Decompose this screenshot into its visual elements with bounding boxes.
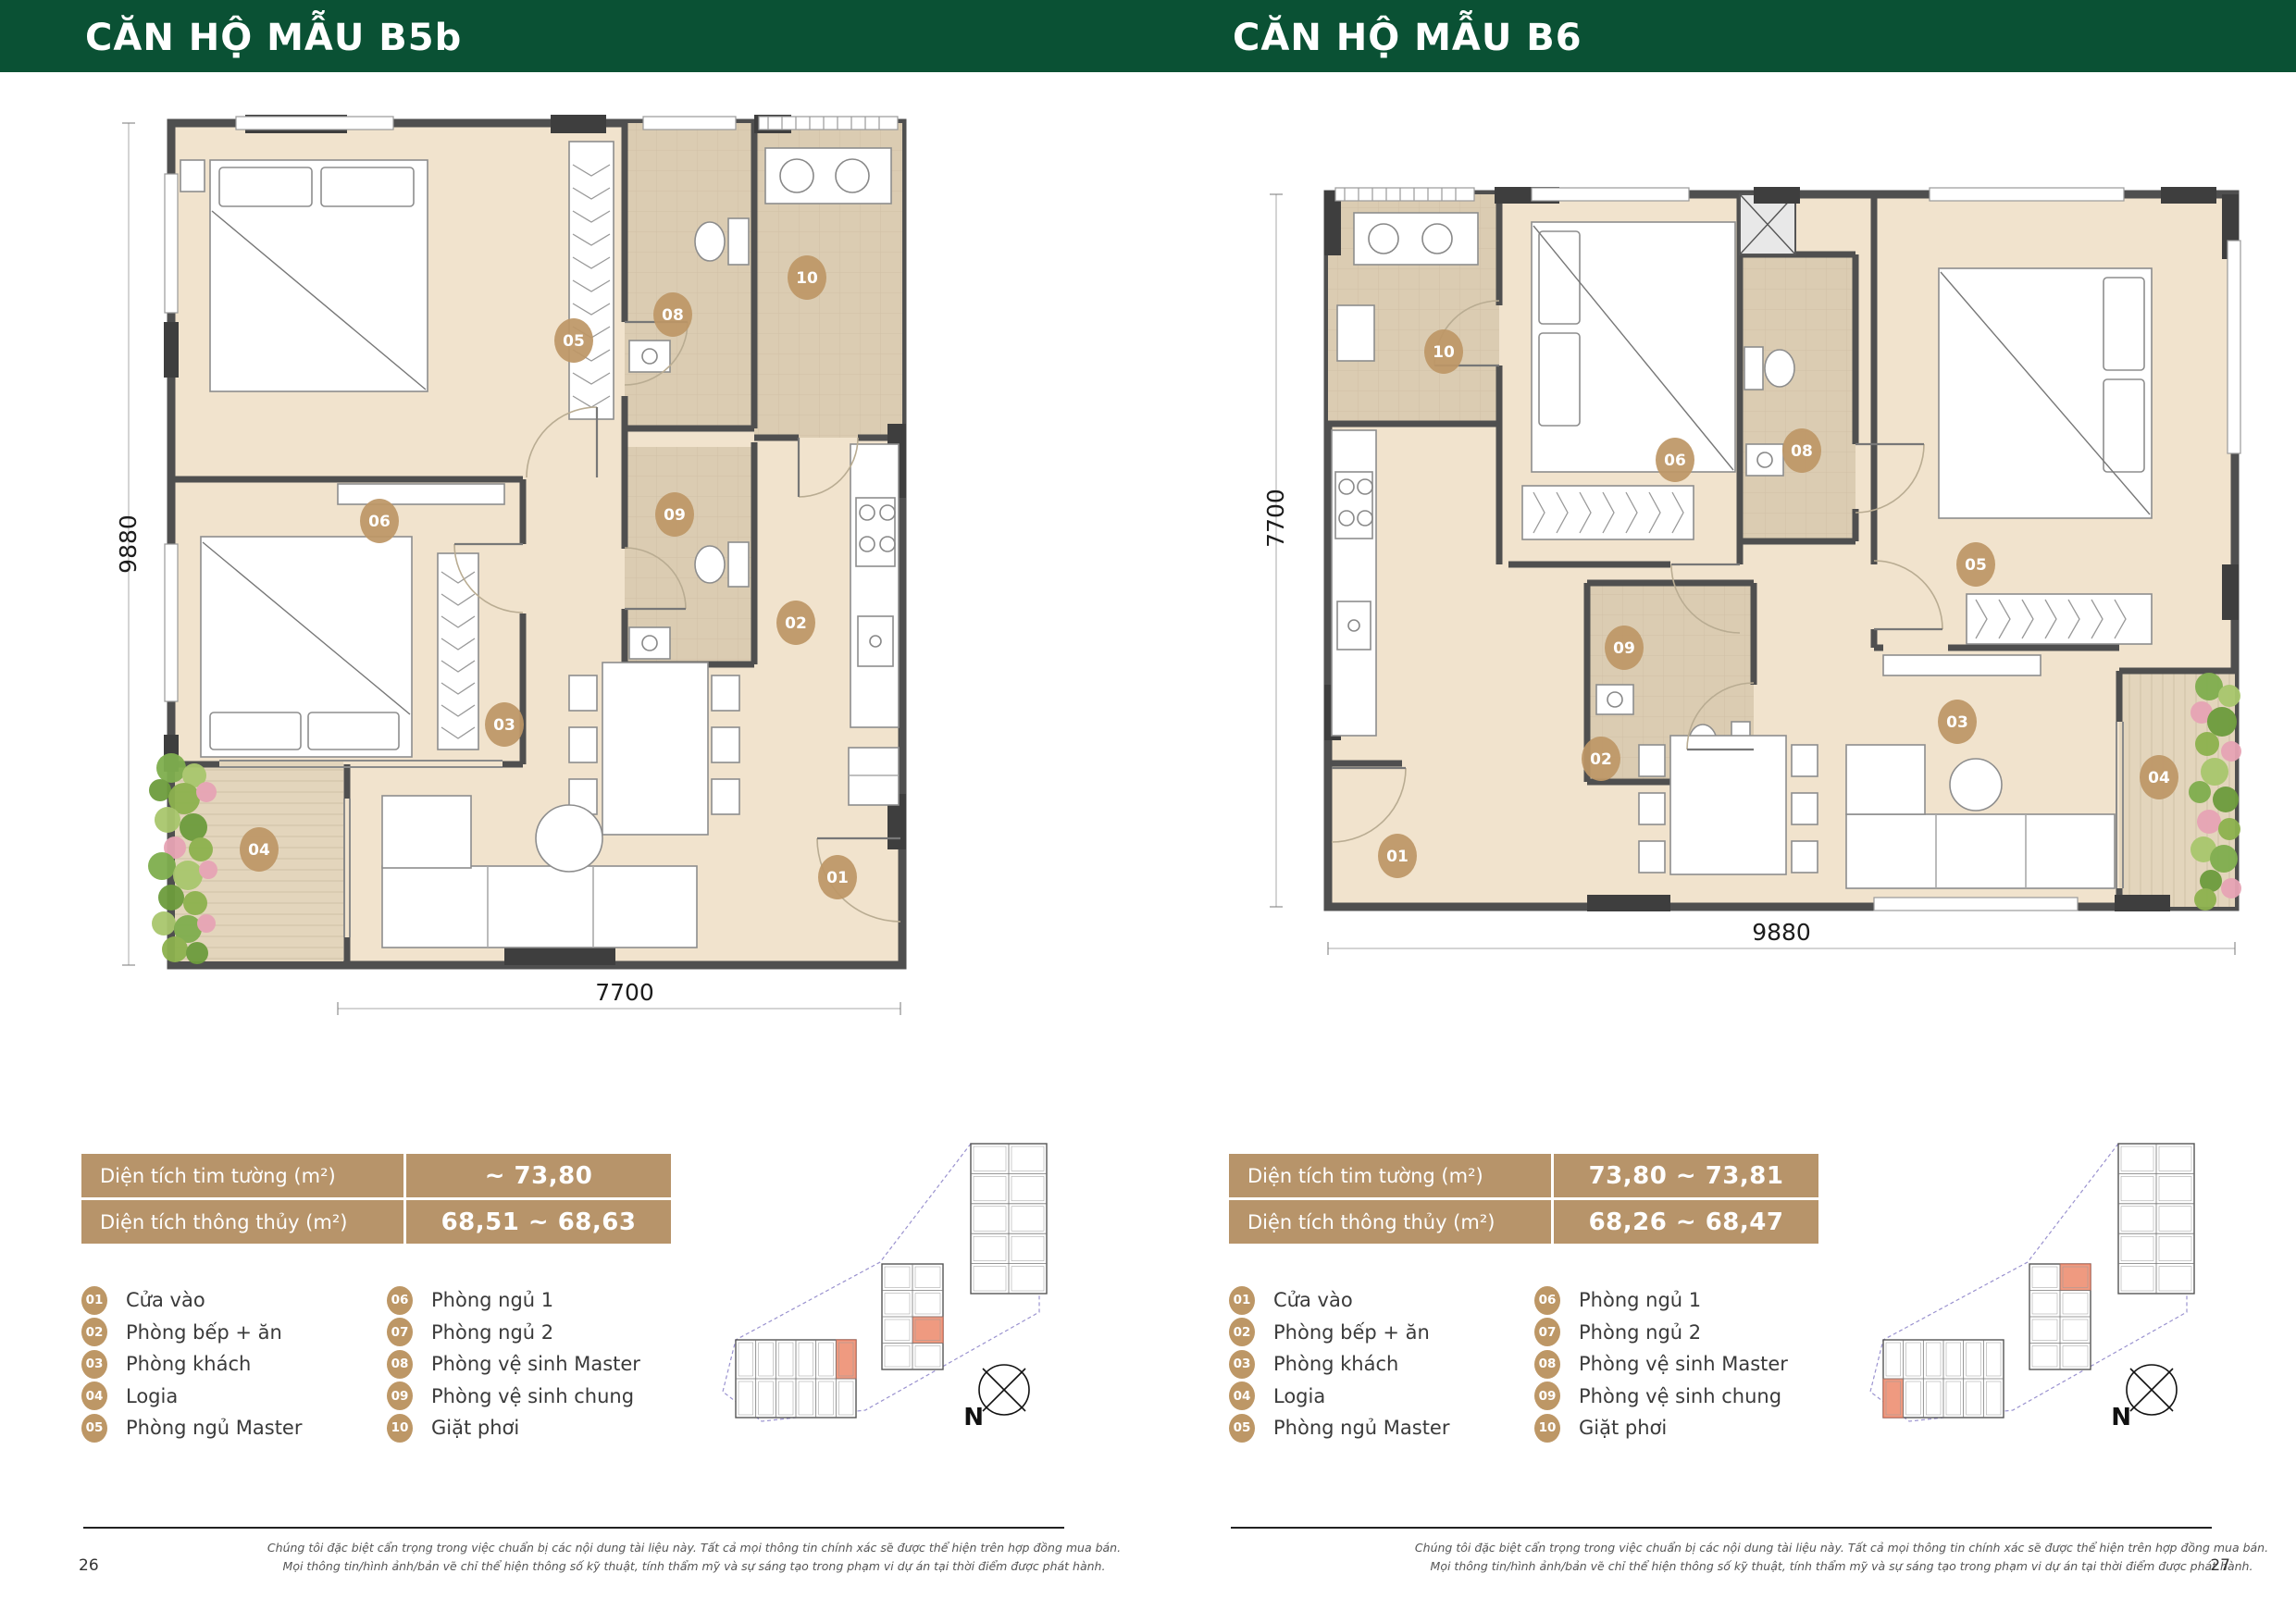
plan-badge-01: 01 [818,855,857,899]
svg-text:04: 04 [248,841,270,860]
plan-badge-01: 01 [1378,834,1417,878]
legend-column-1: 01Cửa vào02Phòng bếp + ăn03Phòng khách04… [81,1284,387,1444]
plan-badge-09: 09 [1605,626,1644,670]
legend-badge-04: 04 [81,1381,107,1410]
dim-horizontal-label: 7700 [595,979,654,1006]
legend-badge-09: 09 [1534,1381,1560,1410]
legend-item-06: 06Phòng ngủ 1 [387,1284,711,1317]
legend-item-05: 05Phòng ngủ Master [1229,1412,1534,1444]
legend-badge-03: 03 [81,1350,107,1379]
legend-item-03: 03Phòng khách [1229,1348,1534,1381]
plan-badge-04: 04 [240,827,279,872]
legend-item-06: 06Phòng ngủ 1 [1534,1284,1858,1317]
svg-text:06: 06 [368,513,391,531]
legend-label: Phòng ngủ 1 [431,1289,553,1311]
legend-badge-01: 01 [1229,1286,1255,1315]
footer-divider [1231,1527,2212,1529]
compass-icon: N [2111,1365,2177,1431]
legend-column-2: 06Phòng ngủ 107Phòng ngủ 208Phòng vệ sin… [1534,1284,1858,1444]
dim-vertical-label: 9880 [115,514,142,574]
legend-item-08: 08Phòng vệ sinh Master [387,1348,711,1381]
area-row-label: Diện tích tim tường (m²) [81,1154,403,1197]
legend-label: Phòng bếp + ăn [1273,1321,1430,1344]
header-bar: CĂN HỘ MẪU B5b CĂN HỘ MẪU B6 [0,0,2296,72]
legend-badge-10: 10 [1534,1414,1560,1443]
area-row-value: 68,51 ~ 68,63 [406,1200,671,1244]
legend-badge-07: 07 [387,1318,413,1346]
left-plan-title: CĂN HỘ MẪU B5b [85,17,462,59]
svg-text:05: 05 [563,332,585,351]
legend-badge-08: 08 [387,1350,413,1379]
svg-text:08: 08 [662,306,684,325]
legend-label: Phòng vệ sinh chung [1579,1385,1781,1407]
legend-badge-10: 10 [387,1414,413,1443]
disclaimer-line2: Mọi thông tin/hình ảnh/bản vẽ chỉ thể hi… [1407,1557,2277,1576]
legend-label: Phòng ngủ Master [126,1417,302,1439]
legend-badge-01: 01 [81,1286,107,1315]
legend-badge-06: 06 [1534,1286,1560,1315]
area-table-b6: Diện tích tim tường (m²) 73,80 ~ 73,81 D… [1229,1154,1818,1244]
plan-badge-06: 06 [360,499,399,543]
floor-plan-b5b: 9880 7700 [106,109,921,1035]
legend-b5b: 01Cửa vào02Phòng bếp + ăn03Phòng khách04… [81,1284,711,1444]
legend-badge-02: 02 [1229,1318,1255,1346]
floor-plan-b6: 7700 9880 [1235,167,2290,981]
svg-text:01: 01 [1386,848,1409,866]
svg-text:01: 01 [826,869,849,887]
area-row-value: 68,26 ~ 68,47 [1554,1200,1818,1244]
legend-badge-09: 09 [387,1381,413,1410]
plan-badge-04: 04 [2140,755,2178,799]
highlighted-unit [912,1317,943,1344]
legend-label: Phòng ngủ Master [1273,1417,1449,1439]
site-minimap: N [708,1121,1078,1455]
legend-label: Phòng vệ sinh Master [1579,1353,1788,1375]
legend-column-2: 06Phòng ngủ 107Phòng ngủ 208Phòng vệ sin… [387,1284,711,1444]
plan-badge-08: 08 [1782,428,1821,473]
legend-badge-03: 03 [1229,1350,1255,1379]
dimension-horizontal: 9880 [1328,919,2235,955]
svg-text:08: 08 [1791,442,1813,461]
legend-label: Phòng ngủ 2 [431,1321,553,1344]
disclaimer-line1: Chúng tôi đặc biệt cẩn trọng trong việc … [259,1539,1129,1557]
legend-item-04: 04Logia [1229,1381,1534,1413]
svg-text:03: 03 [1946,713,1968,732]
dimension-horizontal: 7700 [338,979,900,1015]
svg-text:09: 09 [1613,639,1635,658]
legend-badge-07: 07 [1534,1318,1560,1346]
legend-item-03: 03Phòng khách [81,1348,387,1381]
legend-label: Logia [126,1385,178,1407]
plan-badge-02: 02 [776,601,815,645]
plan-badge-05: 05 [554,318,593,363]
legend-item-02: 02Phòng bếp + ăn [81,1317,387,1349]
legend-label: Phòng ngủ 1 [1579,1289,1701,1311]
plan-badge-03: 03 [485,702,524,747]
plan-badge-06: 06 [1656,438,1694,482]
footer-divider [83,1527,1064,1529]
plan-badge-10: 10 [788,255,826,300]
legend-label: Giặt phơi [1579,1417,1667,1439]
legend-label: Giặt phơi [431,1417,519,1439]
page-number: 26 [79,1556,99,1575]
legend-item-05: 05Phòng ngủ Master [81,1412,387,1444]
plan-badge-09: 09 [655,492,694,537]
site-block-A [1883,1340,2004,1418]
plan-badge-05: 05 [1956,542,1995,587]
legend-item-07: 07Phòng ngủ 2 [1534,1317,1858,1349]
site-block-C [971,1144,1047,1294]
legend-item-07: 07Phòng ngủ 2 [387,1317,711,1349]
area-table-b5b: Diện tích tim tường (m²) ~ 73,80 Diện tí… [81,1154,671,1244]
legend-label: Phòng vệ sinh Master [431,1353,640,1375]
legend-label: Cửa vào [126,1289,205,1311]
legend-item-01: 01Cửa vào [1229,1284,1534,1317]
plan-badge-10: 10 [1424,329,1463,374]
svg-text:10: 10 [1433,343,1455,362]
svg-text:02: 02 [1590,750,1612,769]
legend-badge-04: 04 [1229,1381,1255,1410]
legend-badge-05: 05 [1229,1414,1255,1443]
site-minimap: N [1855,1121,2226,1455]
legend-item-09: 09Phòng vệ sinh chung [387,1381,711,1413]
site-block-A [736,1340,856,1418]
legend-item-10: 10Giặt phơi [1534,1412,1858,1444]
highlighted-unit [2060,1264,2091,1291]
area-row-label: Diện tích tim tường (m²) [1229,1154,1551,1197]
legend-label: Logia [1273,1385,1325,1407]
svg-text:03: 03 [493,716,515,735]
legend-label: Phòng ngủ 2 [1579,1321,1701,1344]
dimension-vertical: 7700 [1262,194,1289,907]
brochure-page: CĂN HỘ MẪU B5b CĂN HỘ MẪU B6 9880 7700 [0,0,2296,1623]
right-plan-title: CĂN HỘ MẪU B6 [1233,17,1582,59]
area-row-label: Diện tích thông thủy (m²) [1229,1200,1551,1244]
dimension-vertical: 9880 [115,123,142,965]
legend-label: Phòng khách [126,1353,251,1375]
svg-text:09: 09 [664,506,686,525]
site-block-B [882,1264,943,1369]
legend-item-10: 10Giặt phơi [387,1412,711,1444]
legend-item-04: 04Logia [81,1381,387,1413]
disclaimer-text: Chúng tôi đặc biệt cẩn trọng trong việc … [259,1539,1129,1576]
legend-item-02: 02Phòng bếp + ăn [1229,1317,1534,1349]
legend-label: Phòng khách [1273,1353,1398,1375]
legend-label: Phòng vệ sinh chung [431,1385,634,1407]
compass-icon: N [963,1365,1029,1431]
svg-text:05: 05 [1965,556,1987,575]
plan-badge-03: 03 [1938,700,1977,744]
dim-vertical-label: 7700 [1262,489,1289,548]
legend-label: Phòng bếp + ăn [126,1321,282,1344]
plan-badge-02: 02 [1582,737,1620,781]
compass-n-label: N [2111,1404,2131,1431]
disclaimer-text: Chúng tôi đặc biệt cẩn trọng trong việc … [1407,1539,2277,1576]
svg-text:04: 04 [2148,769,2170,787]
legend-badge-06: 06 [387,1286,413,1315]
legend-b6: 01Cửa vào02Phòng bếp + ăn03Phòng khách04… [1229,1284,1858,1444]
legend-label: Cửa vào [1273,1289,1353,1311]
plan-badge-08: 08 [653,292,692,337]
legend-badge-08: 08 [1534,1350,1560,1379]
disclaimer-line2: Mọi thông tin/hình ảnh/bản vẽ chỉ thể hi… [259,1557,1129,1576]
legend-item-08: 08Phòng vệ sinh Master [1534,1348,1858,1381]
legend-badge-05: 05 [81,1414,107,1443]
svg-text:02: 02 [785,614,807,633]
page-number: 27 [2175,1556,2230,1575]
site-block-B [2029,1264,2091,1369]
svg-text:10: 10 [796,269,818,288]
legend-column-1: 01Cửa vào02Phòng bếp + ăn03Phòng khách04… [1229,1284,1534,1444]
area-row-value: ~ 73,80 [406,1154,671,1197]
compass-n-label: N [963,1404,984,1431]
legend-item-09: 09Phòng vệ sinh chung [1534,1381,1858,1413]
disclaimer-line1: Chúng tôi đặc biệt cẩn trọng trong việc … [1407,1539,2277,1557]
area-row-value: 73,80 ~ 73,81 [1554,1154,1818,1197]
dim-horizontal-label: 9880 [1752,919,1811,946]
legend-badge-02: 02 [81,1318,107,1346]
legend-item-01: 01Cửa vào [81,1284,387,1317]
svg-text:06: 06 [1664,452,1686,470]
area-row-label: Diện tích thông thủy (m²) [81,1200,403,1244]
site-block-C [2118,1144,2194,1294]
